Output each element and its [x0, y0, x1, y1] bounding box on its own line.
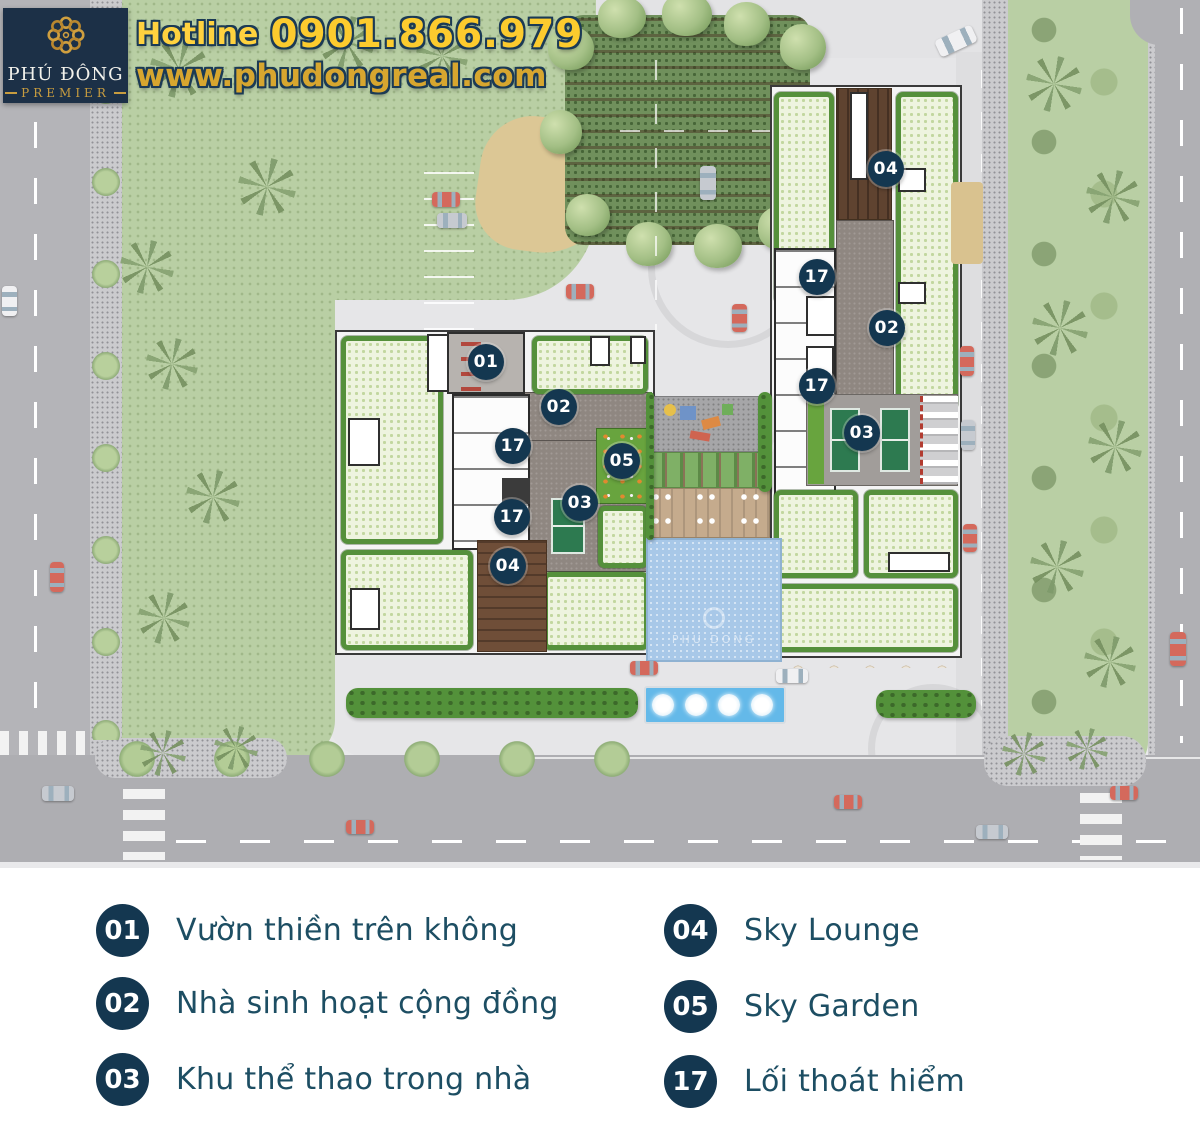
legend-item-17: 17 Lối thoát hiểm	[664, 1055, 965, 1108]
car	[732, 304, 747, 332]
map-badge-17-right-a: 17	[799, 259, 835, 295]
fountain-jet	[718, 694, 740, 716]
rooftop-room	[348, 418, 380, 466]
site-plan-map: PHU DONG	[0, 0, 1200, 868]
tree	[566, 194, 610, 236]
hedge-strip-vertical	[646, 392, 654, 540]
car	[50, 562, 64, 592]
right-courtyard	[774, 584, 958, 652]
palm-tree	[1084, 636, 1136, 688]
elevator-core	[850, 92, 868, 180]
tree	[540, 110, 582, 154]
car	[961, 420, 975, 450]
hedge-strip-vertical	[758, 392, 772, 492]
play-equipment	[664, 404, 676, 416]
fountain-jet	[751, 694, 773, 716]
map-badge-03-right: 03	[844, 415, 880, 451]
hotline-row: Hotline 0901.866.979	[136, 12, 583, 57]
palm-tree	[140, 730, 186, 776]
right-courtyard	[896, 92, 958, 410]
map-badge-17-right-b: 17	[799, 368, 835, 404]
car	[2, 286, 17, 316]
logo-decor-line	[5, 92, 17, 94]
swimming-pool: PHU DONG	[646, 538, 782, 662]
palm-tree	[146, 338, 198, 390]
street-tree-row-left	[84, 50, 128, 740]
car	[960, 346, 974, 376]
tree	[694, 224, 742, 268]
legend-number-05: 05	[664, 980, 717, 1033]
dropoff-pad	[951, 182, 983, 264]
tree	[626, 222, 672, 266]
crosswalk-left-road	[0, 731, 90, 757]
hotline-label: Hotline	[136, 17, 258, 52]
tree	[724, 2, 770, 46]
hotline-number: 0901.866.979	[270, 12, 583, 57]
tree	[780, 24, 826, 70]
car	[437, 213, 467, 228]
legend-label-01: Vườn thiền trên không	[176, 913, 518, 948]
map-badge-01: 01	[468, 344, 504, 380]
car	[346, 820, 374, 834]
map-badge-02-right: 02	[869, 310, 905, 346]
map-badge-05: 05	[604, 443, 640, 479]
palm-tree	[1066, 728, 1108, 770]
legend-label-03: Khu thể thao trong nhà	[176, 1062, 531, 1097]
site-plan-poster: PHU DONG	[0, 0, 1200, 1125]
legend-label-05: Sky Garden	[744, 989, 920, 1024]
fountain-jet	[652, 694, 674, 716]
fountain-jet	[685, 694, 707, 716]
legend-number-04: 04	[664, 904, 717, 957]
logo-ornament-icon	[43, 12, 89, 62]
legend-number-17: 17	[664, 1055, 717, 1108]
website-url: www.phudongreal.com	[136, 58, 547, 94]
car	[630, 661, 658, 675]
palm-tree	[1086, 170, 1140, 224]
palm-tree	[120, 240, 174, 294]
rooftop-room	[350, 588, 380, 630]
brand-logo: PHÚ ĐÔNG PREMIER	[3, 8, 128, 103]
legend-item-01: 01 Vườn thiền trên không	[96, 904, 518, 957]
legend-number-02: 02	[96, 977, 149, 1030]
terraced-garden	[648, 452, 770, 488]
car	[1170, 632, 1186, 666]
road-bottom-center-line	[176, 840, 1200, 843]
legend-number-03: 03	[96, 1053, 149, 1106]
map-badge-17-left-b: 17	[494, 499, 530, 535]
legend-label-04: Sky Lounge	[744, 913, 920, 948]
map-badge-04-right: 04	[868, 151, 904, 187]
logo-project-name: PHÚ ĐÔNG	[7, 64, 123, 85]
hedge-strip-right	[876, 690, 976, 718]
palm-tree	[138, 592, 190, 644]
logo-decor-line	[114, 92, 126, 94]
logo-subname-text: PREMIER	[21, 86, 110, 100]
car	[963, 524, 977, 552]
car	[42, 786, 74, 801]
legend-item-05: 05 Sky Garden	[664, 980, 920, 1033]
car	[700, 166, 716, 200]
garden-strip	[808, 396, 824, 484]
rooftop-room	[630, 336, 646, 364]
hedge-strip-left	[346, 688, 638, 718]
map-badge-04-left: 04	[490, 548, 526, 584]
palm-tree	[1032, 300, 1088, 356]
map-badge-02-left: 02	[541, 389, 577, 425]
car	[776, 669, 808, 683]
lane-dash	[655, 60, 657, 330]
car	[834, 795, 862, 809]
grass-area-left-strip	[110, 290, 335, 760]
sidewalk-right-inner	[982, 0, 1008, 772]
road-corner-top-right	[1130, 0, 1200, 45]
rooftop-room	[898, 282, 926, 304]
legend-item-04: 04 Sky Lounge	[664, 904, 920, 957]
palm-tree	[238, 158, 296, 216]
legend-item-03: 03 Khu thể thao trong nhà	[96, 1053, 531, 1106]
road-left-center-line	[34, 10, 37, 726]
parking-units	[920, 396, 958, 484]
pool-watermark-text: PHU DONG	[672, 633, 756, 646]
palm-tree	[214, 726, 258, 770]
right-courtyard	[774, 490, 858, 578]
rooftop-room	[590, 336, 610, 366]
palm-tree	[1030, 540, 1084, 594]
car	[432, 192, 460, 207]
legend-label-02: Nhà sinh hoạt cộng đồng	[176, 986, 559, 1021]
pool-watermark-ornament	[703, 607, 725, 629]
car	[976, 825, 1008, 839]
rooftop-room	[888, 552, 950, 572]
play-equipment	[680, 406, 696, 420]
palm-tree	[1002, 732, 1046, 776]
legend-label-17: Lối thoát hiểm	[744, 1064, 965, 1099]
rooftop-room	[806, 296, 836, 336]
palm-tree	[1026, 56, 1082, 112]
map-badge-03-left: 03	[562, 485, 598, 521]
legend-number-01: 01	[96, 904, 149, 957]
legend-item-02: 02 Nhà sinh hoạt cộng đồng	[96, 977, 559, 1030]
play-equipment	[722, 404, 733, 415]
map-badge-17-left-a: 17	[495, 428, 531, 464]
logo-project-subname: PREMIER	[1, 86, 130, 100]
car	[1110, 786, 1138, 800]
palm-tree	[186, 470, 240, 524]
car	[566, 284, 594, 299]
palm-tree	[1088, 420, 1142, 474]
left-courtyard	[543, 572, 649, 650]
road-left	[0, 0, 90, 758]
rooftop-room	[427, 334, 449, 392]
left-courtyard	[598, 506, 648, 568]
pool-lounge-deck	[646, 488, 770, 538]
tennis-court	[880, 408, 910, 472]
